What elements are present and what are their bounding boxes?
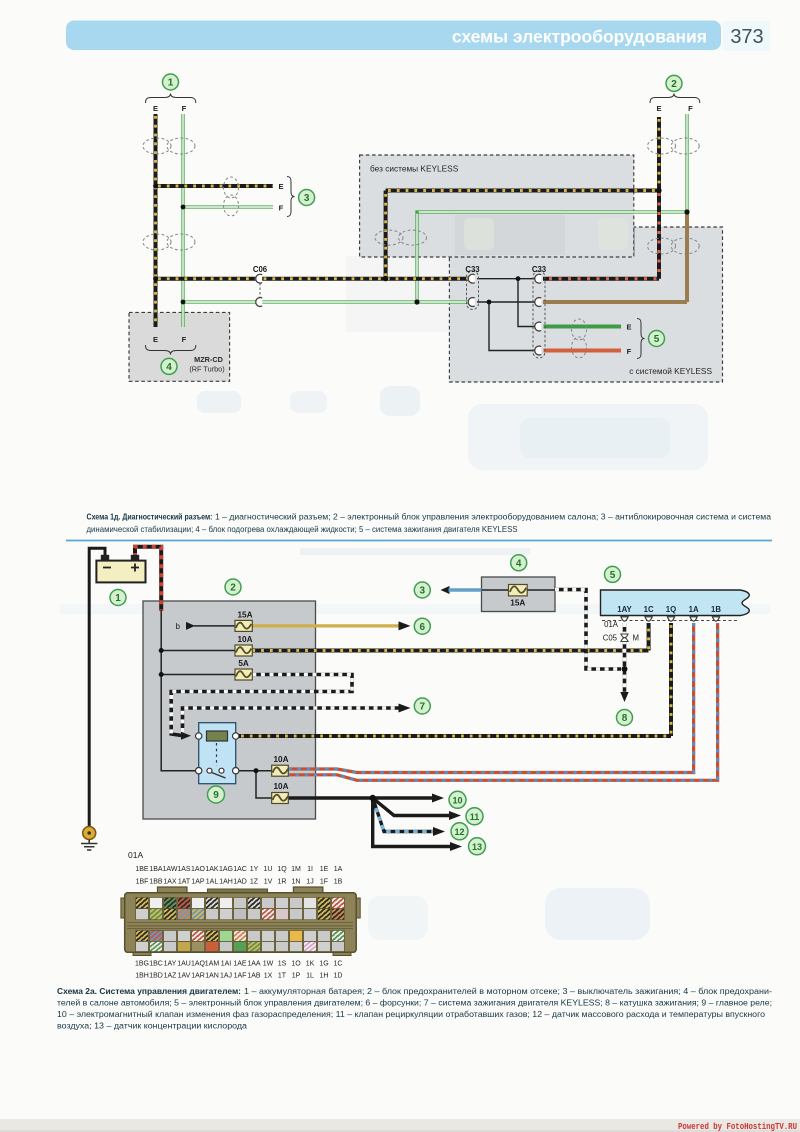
svg-text:1C: 1C — [334, 961, 343, 968]
svg-text:MZR-CD: MZR-CD — [194, 355, 223, 364]
svg-text:15A: 15A — [237, 610, 252, 619]
svg-text:1AF: 1AF — [234, 973, 247, 980]
svg-text:5: 5 — [610, 570, 616, 581]
svg-text:1L: 1L — [306, 973, 314, 980]
svg-text:1AG: 1AG — [219, 866, 233, 873]
svg-text:7: 7 — [420, 702, 426, 713]
svg-text:Схема 2а. Система управления д: Схема 2а. Система управления двигателем: — [57, 986, 241, 996]
svg-text:12: 12 — [454, 827, 464, 837]
svg-text:1Y: 1Y — [250, 866, 259, 873]
svg-text:1AS: 1AS — [177, 866, 191, 873]
svg-text:1: 1 — [168, 78, 174, 89]
svg-text:10A: 10A — [273, 755, 288, 764]
svg-text:1AN: 1AN — [205, 973, 219, 980]
svg-text:1AI: 1AI — [221, 961, 232, 968]
svg-text:(RF Turbo): (RF Turbo) — [189, 365, 224, 374]
svg-text:E: E — [153, 335, 158, 344]
svg-text:Powered by FotoHostingTV.RU: Powered by FotoHostingTV.RU — [678, 1122, 797, 1132]
svg-text:1AC: 1AC — [233, 866, 247, 873]
svg-text:1A: 1A — [689, 605, 699, 614]
svg-text:10: 10 — [452, 795, 462, 805]
svg-text:1AA: 1AA — [247, 961, 261, 968]
svg-text:1B: 1B — [711, 605, 721, 614]
svg-text:1D: 1D — [334, 973, 343, 980]
svg-text:1: 1 — [115, 593, 121, 604]
svg-text:1H: 1H — [320, 973, 329, 980]
svg-text:5: 5 — [654, 334, 660, 345]
svg-text:1T: 1T — [278, 973, 287, 980]
svg-text:1C: 1C — [644, 605, 654, 614]
svg-text:1BA: 1BA — [149, 866, 163, 873]
svg-text:1AY: 1AY — [617, 605, 632, 614]
svg-text:E: E — [278, 182, 283, 191]
svg-text:1AV: 1AV — [178, 973, 191, 980]
svg-text:1AM: 1AM — [205, 961, 220, 968]
svg-text:01A: 01A — [604, 620, 619, 629]
svg-text:15A: 15A — [510, 598, 525, 607]
svg-text:F: F — [627, 347, 632, 356]
svg-text:1BE: 1BE — [135, 866, 149, 873]
svg-text:E: E — [153, 104, 158, 113]
svg-text:1AT: 1AT — [178, 879, 191, 886]
svg-text:1Q: 1Q — [277, 866, 287, 873]
svg-text:схемы электрооборудования: схемы электрооборудования — [452, 27, 707, 47]
svg-text:динамической стабилизации; 4 –: динамической стабилизации; 4 – блок подо… — [87, 524, 518, 534]
svg-text:5A: 5A — [238, 659, 249, 668]
svg-text:1AP: 1AP — [191, 879, 205, 886]
svg-text:без системы KEYLESS: без системы KEYLESS — [370, 164, 459, 174]
svg-text:8: 8 — [622, 713, 628, 724]
svg-text:9: 9 — [213, 790, 219, 801]
svg-text:2: 2 — [671, 79, 677, 90]
svg-text:1F: 1F — [320, 879, 328, 886]
svg-text:1E: 1E — [320, 866, 329, 873]
svg-text:1Z: 1Z — [250, 879, 259, 886]
svg-text:1W: 1W — [263, 961, 274, 968]
svg-text:11: 11 — [470, 812, 480, 822]
svg-text:Схема 1д. Диагностический разъ: Схема 1д. Диагностический разъем: — [87, 512, 213, 522]
svg-text:с системой KEYLESS: с системой KEYLESS — [629, 366, 712, 376]
svg-text:6: 6 — [420, 622, 426, 633]
svg-text:b: b — [176, 622, 181, 631]
svg-text:F: F — [688, 104, 693, 113]
svg-text:телей в салоне автомобиля; 5 –: телей в салоне автомобиля; 5 – электронн… — [57, 998, 772, 1008]
svg-text:1BD: 1BD — [149, 973, 163, 980]
svg-text:1G: 1G — [319, 961, 328, 968]
svg-text:4: 4 — [166, 362, 172, 373]
svg-text:01A: 01A — [128, 850, 143, 860]
svg-text:1X: 1X — [264, 973, 273, 980]
svg-text:M: M — [633, 634, 640, 643]
svg-text:F: F — [182, 335, 187, 344]
svg-text:1N: 1N — [292, 879, 301, 886]
svg-text:1AE: 1AE — [233, 961, 247, 968]
svg-text:373: 373 — [730, 26, 763, 48]
svg-text:1 – аккумуляторная батарея; 2: 1 – аккумуляторная батарея; 2 – блок пре… — [244, 986, 772, 996]
svg-text:2: 2 — [230, 583, 236, 594]
svg-text:1AJ: 1AJ — [220, 973, 232, 980]
svg-text:13: 13 — [472, 842, 482, 852]
svg-text:1B: 1B — [334, 879, 343, 886]
svg-text:1AL: 1AL — [206, 879, 219, 886]
svg-text:F: F — [182, 104, 187, 113]
svg-text:1AX: 1AX — [163, 879, 177, 886]
svg-text:1AB: 1AB — [247, 973, 261, 980]
svg-text:1BF: 1BF — [136, 879, 149, 886]
svg-text:1 – диагностический разъем; 2: 1 – диагностический разъем; 2 – электрон… — [215, 512, 771, 522]
svg-text:3: 3 — [304, 193, 310, 204]
svg-text:1AD: 1AD — [233, 879, 247, 886]
svg-text:1AU: 1AU — [177, 961, 191, 968]
svg-text:1K: 1K — [306, 961, 315, 968]
svg-text:1AQ: 1AQ — [191, 961, 206, 968]
svg-text:10A: 10A — [273, 782, 288, 791]
svg-text:1O: 1O — [291, 961, 301, 968]
svg-text:1AR: 1AR — [191, 973, 205, 980]
svg-text:1Q: 1Q — [666, 605, 676, 614]
svg-text:1AK: 1AK — [205, 866, 219, 873]
svg-text:10 – электромагнитный клапан и: 10 – электромагнитный клапан изменения ф… — [57, 1009, 765, 1019]
svg-text:1A: 1A — [334, 866, 343, 873]
svg-text:1S: 1S — [278, 961, 287, 968]
svg-text:1AO: 1AO — [191, 866, 206, 873]
svg-text:C33: C33 — [532, 265, 547, 274]
svg-text:C33: C33 — [465, 265, 480, 274]
svg-text:C05: C05 — [603, 634, 618, 643]
svg-text:10A: 10A — [237, 635, 252, 644]
svg-text:1AY: 1AY — [164, 961, 177, 968]
svg-text:1AW: 1AW — [163, 866, 178, 873]
svg-text:1AH: 1AH — [219, 879, 233, 886]
svg-text:F: F — [279, 204, 284, 213]
svg-text:1BG: 1BG — [135, 961, 149, 968]
svg-text:1I: 1I — [307, 866, 313, 873]
svg-text:1J: 1J — [306, 879, 313, 886]
svg-text:1U: 1U — [264, 866, 273, 873]
svg-text:1BH: 1BH — [135, 973, 149, 980]
svg-text:E: E — [626, 323, 631, 332]
svg-text:1V: 1V — [264, 879, 273, 886]
svg-text:1BC: 1BC — [149, 961, 163, 968]
svg-text:1R: 1R — [278, 879, 287, 886]
svg-text:1BB: 1BB — [149, 879, 163, 886]
svg-text:4: 4 — [516, 558, 522, 569]
svg-text:1M: 1M — [291, 866, 301, 873]
svg-text:E: E — [656, 104, 661, 113]
svg-text:3: 3 — [420, 586, 426, 597]
svg-text:воздуха; 13 – датчик концентра: воздуха; 13 – датчик концентрации кислор… — [57, 1021, 247, 1031]
svg-text:C06: C06 — [253, 265, 268, 274]
svg-text:1AZ: 1AZ — [164, 973, 178, 980]
svg-text:1P: 1P — [292, 973, 301, 980]
